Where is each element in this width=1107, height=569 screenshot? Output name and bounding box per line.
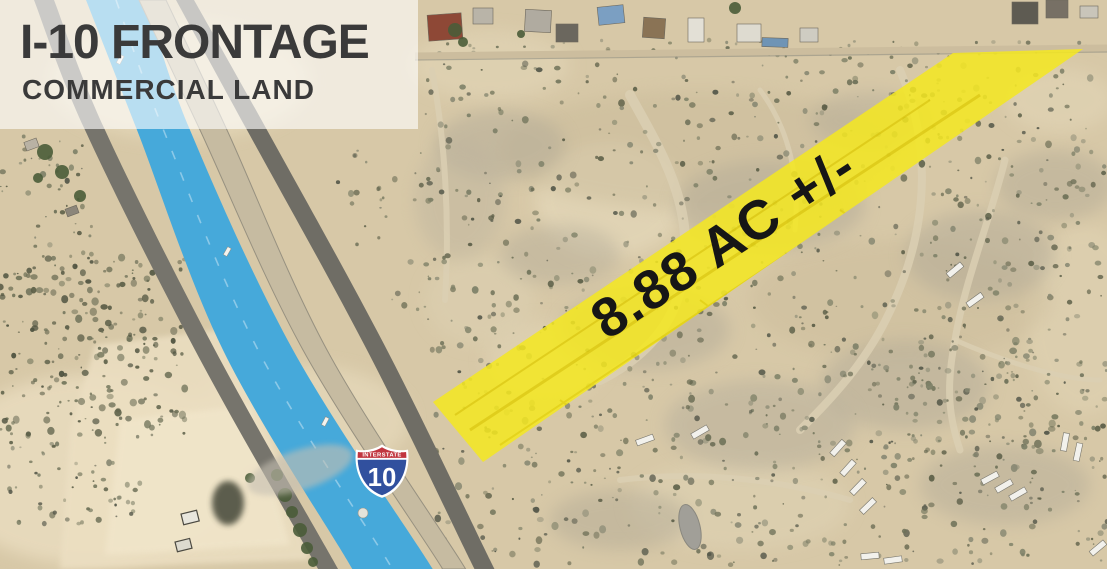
page-subtitle: COMMERCIAL LAND [22,74,418,106]
title-overlay: I-10 FRONTAGE COMMERCIAL LAND [0,0,418,129]
shield-route-number: 10 [368,464,397,492]
aerial-listing-image: 8.88 AC +/- INTERSTATE 10 I-10 FRONTAGE … [0,0,1107,569]
page-title: I-10 FRONTAGE [20,18,418,68]
shield-interstate-label: INTERSTATE [362,452,401,458]
